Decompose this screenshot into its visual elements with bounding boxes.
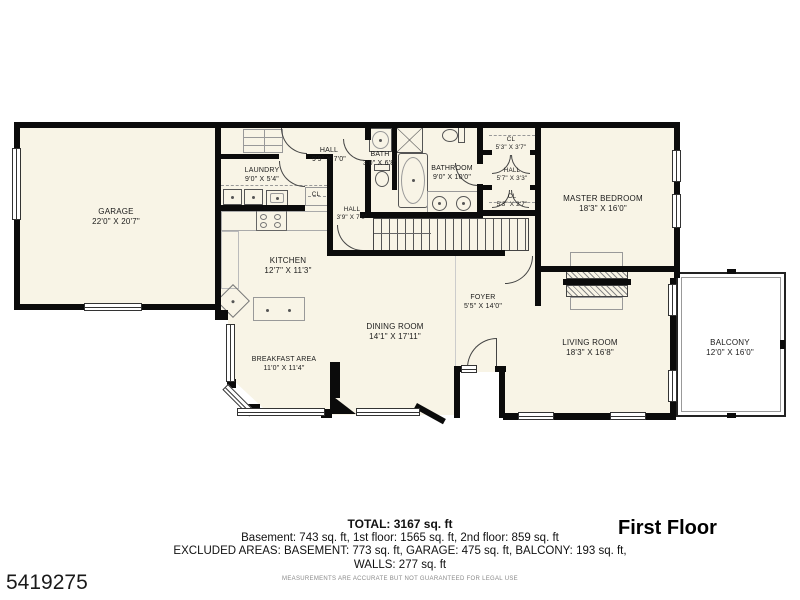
wall (215, 122, 221, 318)
window (84, 303, 142, 311)
wall (14, 122, 680, 128)
front-door-leaf (496, 339, 497, 368)
fireplace (566, 285, 628, 297)
bathtub-icon (398, 153, 428, 208)
vanity-sinks (427, 191, 478, 214)
washer-icon (223, 189, 242, 205)
wall (327, 154, 333, 256)
bath-sink-icon (369, 128, 392, 152)
laundry-sink-icon (266, 190, 288, 206)
room-label-foyer: FOYER 5'5" X 14'0" (464, 293, 502, 311)
wall (535, 122, 541, 268)
window (461, 365, 477, 373)
floor-plan: GARAGE 22'0" X 20'7" LAUNDRY 9'0" X 5'4"… (0, 0, 800, 520)
closet-shelves (243, 129, 283, 153)
wall (215, 205, 305, 211)
balcony-tick (727, 413, 736, 418)
room-label-master-bedroom: MASTER BEDROOM 18'3" X 16'0" (563, 194, 643, 214)
window (672, 194, 681, 228)
window (672, 150, 681, 182)
burner (274, 214, 281, 220)
balcony-tick (780, 340, 785, 349)
disclaimer: MEASUREMENTS ARE ACCURATE BUT NOT GUARAN… (0, 576, 800, 582)
wall (535, 272, 541, 306)
room-label-laundry-closet: CL (312, 191, 320, 199)
room-label-balcony: BALCONY 12'0" X 16'0" (706, 338, 754, 358)
stove-icon (256, 210, 287, 231)
window (518, 412, 554, 420)
window (12, 148, 21, 220)
wall (360, 212, 483, 218)
window (356, 408, 420, 416)
room-label-breakfast-area: BREAKFAST AREA 11'0" X 11'4" (252, 355, 317, 373)
window (226, 324, 235, 382)
island-dot (266, 309, 269, 312)
stairs-midline (374, 233, 431, 234)
burner (260, 214, 267, 220)
wall (535, 266, 676, 272)
room-label-closet-top: CL 5'3" X 3'7" (496, 136, 527, 152)
room-label-hall-lower: HALL 3'9" X 7'0" (337, 206, 368, 222)
room-label-dining-room: DINING ROOM 14'1" X 17'11" (366, 322, 423, 342)
wall (477, 122, 483, 164)
dryer-icon (244, 189, 263, 205)
room-label-hall-upper: HALL 9'9" X 7'0" (312, 146, 346, 164)
room-label-hall-master: HALL 5'7" X 3'3" (497, 167, 528, 183)
wall (327, 250, 505, 256)
room-label-bath: BATH 3'0" X 6'8" (363, 150, 397, 168)
excluded-areas: EXCLUDED AREAS: BASEMENT: 773 sq. ft, GA… (0, 545, 800, 559)
window (610, 412, 646, 420)
shower-icon (396, 127, 423, 153)
balcony-tick (727, 269, 736, 274)
wall (330, 362, 340, 398)
burner (260, 222, 267, 228)
walls-area: WALLS: 277 sq. ft (0, 559, 800, 573)
room-label-laundry: LAUNDRY 9'0" X 5'4" (245, 166, 280, 184)
room-label-living-room: LIVING ROOM 18'3" X 16'8" (562, 338, 618, 358)
room-label-closet-bottom: CL 5'3" X 2'7" (497, 193, 528, 209)
listing-id: 5419275 (6, 571, 88, 595)
stairs (373, 218, 529, 251)
burner (274, 222, 281, 228)
island-dot (288, 309, 291, 312)
window (668, 370, 677, 402)
tub-basin (401, 157, 425, 204)
sink-icon (456, 196, 471, 211)
wall (499, 366, 505, 418)
floor-title: First Floor (618, 517, 717, 540)
room-label-bathroom: BATHROOM 9'0" X 10'0" (431, 164, 473, 182)
sink-icon (432, 196, 447, 211)
wall (483, 185, 492, 190)
exterior-cutout (460, 372, 499, 417)
fireplace-hearth-bottom (570, 297, 623, 310)
wall (215, 154, 279, 159)
wall (215, 310, 228, 320)
kitchen-counter-left (221, 231, 239, 289)
window (237, 408, 325, 416)
fireplace-hearth-top (570, 252, 623, 267)
kitchen-island (253, 297, 305, 321)
window (668, 284, 677, 316)
room-label-garage: GARAGE 22'0" X 20'7" (92, 207, 140, 227)
counter-line (221, 185, 327, 186)
toilet-bowl (375, 171, 389, 187)
wall (483, 210, 541, 216)
floor-plan-page: GARAGE 22'0" X 20'7" LAUNDRY 9'0" X 5'4"… (0, 0, 800, 600)
toilet-bowl (442, 129, 458, 142)
sink-basin (372, 131, 389, 149)
room-label-kitchen: KITCHEN 12'7" X 11'3" (264, 256, 311, 276)
foyer-boundary-line (455, 256, 456, 366)
sink-basin (270, 193, 284, 203)
toilet-tank (458, 126, 465, 143)
wall (483, 150, 492, 155)
wall (454, 366, 460, 418)
wall (365, 122, 371, 140)
